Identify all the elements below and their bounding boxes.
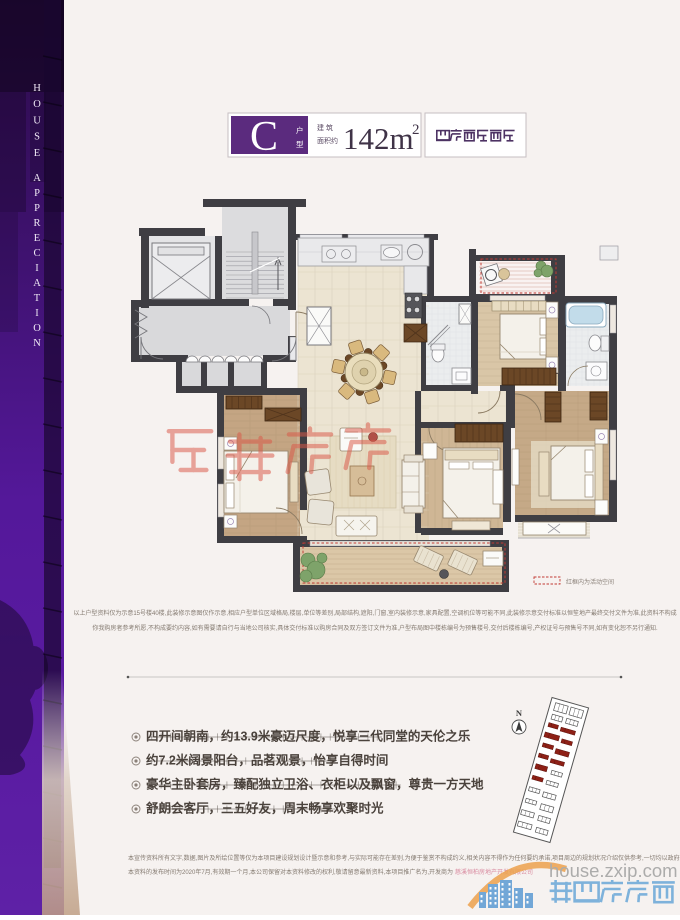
- svg-text:你我购房者参考所愿,不构成要约内容,如有需要请自行与当地公司: 你我购房者参考所愿,不构成要约内容,如有需要请自行与当地公司核实,具体交付标准以…: [92, 624, 658, 632]
- svg-text:I: I: [35, 308, 39, 319]
- svg-text:户: 户: [296, 125, 304, 135]
- svg-text:I: I: [35, 263, 39, 274]
- svg-text:T: T: [34, 293, 41, 304]
- svg-text:E: E: [34, 233, 40, 244]
- svg-text:142m: 142m: [343, 121, 414, 156]
- svg-text:红框内为活动空间: 红框内为活动空间: [566, 578, 614, 586]
- svg-text:house.zxip.com: house.zxip.com: [549, 860, 678, 881]
- svg-text:E: E: [34, 148, 40, 159]
- svg-text:建 筑: 建 筑: [317, 123, 333, 132]
- svg-text:面积约: 面积约: [317, 136, 338, 145]
- svg-text:约7.2米阔景阳台，品茗观景，怡享自得时间: 约7.2米阔景阳台，品茗观景，怡享自得时间: [146, 753, 388, 768]
- svg-text:N: N: [516, 708, 523, 718]
- svg-text:H: H: [33, 83, 41, 94]
- svg-text:C: C: [250, 114, 278, 160]
- svg-text:N: N: [33, 338, 41, 349]
- svg-text:2: 2: [412, 122, 420, 138]
- svg-text:豪华主卧套房，臻配独立卫浴、衣柜以及飘窗，尊贵一方天地: 豪华主卧套房，臻配独立卫浴、衣柜以及飘窗，尊贵一方天地: [146, 777, 484, 792]
- svg-text:A: A: [33, 278, 41, 289]
- svg-text:P: P: [34, 203, 40, 214]
- svg-text:以上户型资料仅为示意15号楼40楼,此装修示意图仅作示意,相: 以上户型资料仅为示意15号楼40楼,此装修示意图仅作示意,相应户型单位区域格局,…: [73, 609, 676, 617]
- svg-text:型: 型: [296, 140, 304, 149]
- svg-text:R: R: [33, 218, 40, 229]
- svg-text:C: C: [33, 248, 40, 259]
- svg-text:U: U: [33, 115, 41, 126]
- svg-text:P: P: [34, 188, 40, 199]
- svg-text:A: A: [33, 173, 41, 184]
- svg-text:O: O: [33, 99, 41, 110]
- svg-text:S: S: [34, 132, 40, 143]
- svg-text:O: O: [33, 323, 41, 334]
- svg-text:四开间朝南，约13.9米豪迈尺度，悦享三代同堂的天伦之乐: 四开间朝南，约13.9米豪迈尺度，悦享三代同堂的天伦之乐: [146, 729, 471, 744]
- svg-text:本资料的发布时间为2020年7月,有效期一个月,本公司保留对: 本资料的发布时间为2020年7月,有效期一个月,本公司保留对本资料修改的权利,敬…: [128, 868, 453, 876]
